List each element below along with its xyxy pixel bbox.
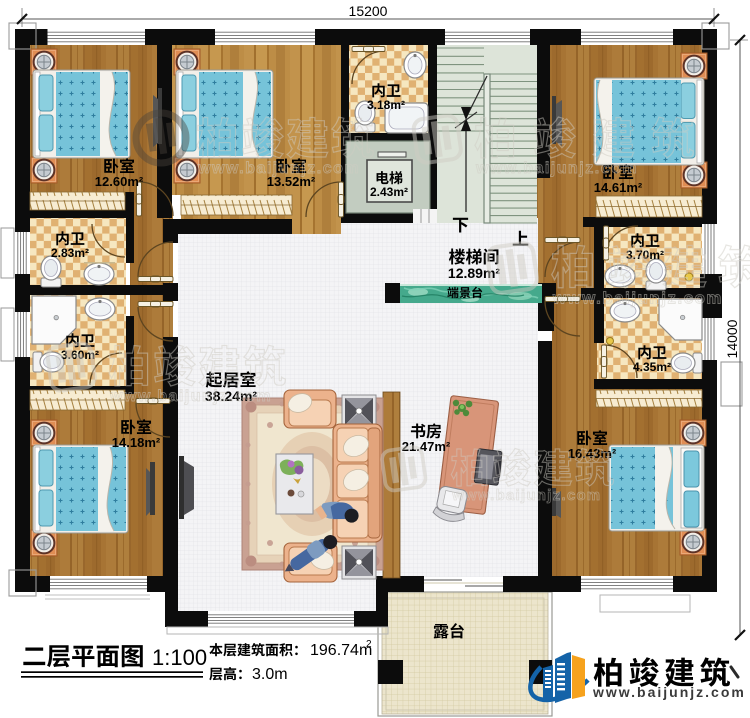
svg-text:2.83m²: 2.83m²: [51, 246, 89, 260]
svg-text:14.61m²: 14.61m²: [594, 180, 643, 195]
svg-text:www.baijunjz.com: www.baijunjz.com: [592, 684, 746, 700]
svg-text:14000: 14000: [724, 319, 740, 358]
svg-text:12.89m²: 12.89m²: [448, 265, 500, 281]
svg-text:2: 2: [366, 639, 372, 650]
svg-text:www.baijunjz.com: www.baijunjz.com: [197, 160, 360, 177]
svg-text:14.18m²: 14.18m²: [112, 435, 161, 450]
svg-text:www.baijunjz.com: www.baijunjz.com: [451, 488, 601, 504]
svg-text:3.18m²: 3.18m²: [367, 98, 405, 112]
svg-text:3.0m: 3.0m: [252, 666, 288, 683]
svg-text:1:100: 1:100: [152, 645, 207, 670]
svg-text:4.35m²: 4.35m²: [633, 360, 671, 374]
svg-text:www.baijunjz.com: www.baijunjz.com: [475, 160, 638, 177]
svg-text:2.43m²: 2.43m²: [370, 185, 408, 199]
svg-text:www.baijunjz.com: www.baijunjz.com: [552, 289, 723, 308]
svg-text:15200: 15200: [349, 3, 388, 19]
svg-text:196.74m: 196.74m: [310, 642, 372, 659]
svg-text:www.baijunjz.com: www.baijunjz.com: [109, 388, 272, 405]
svg-text:12.60m²: 12.60m²: [95, 174, 144, 189]
